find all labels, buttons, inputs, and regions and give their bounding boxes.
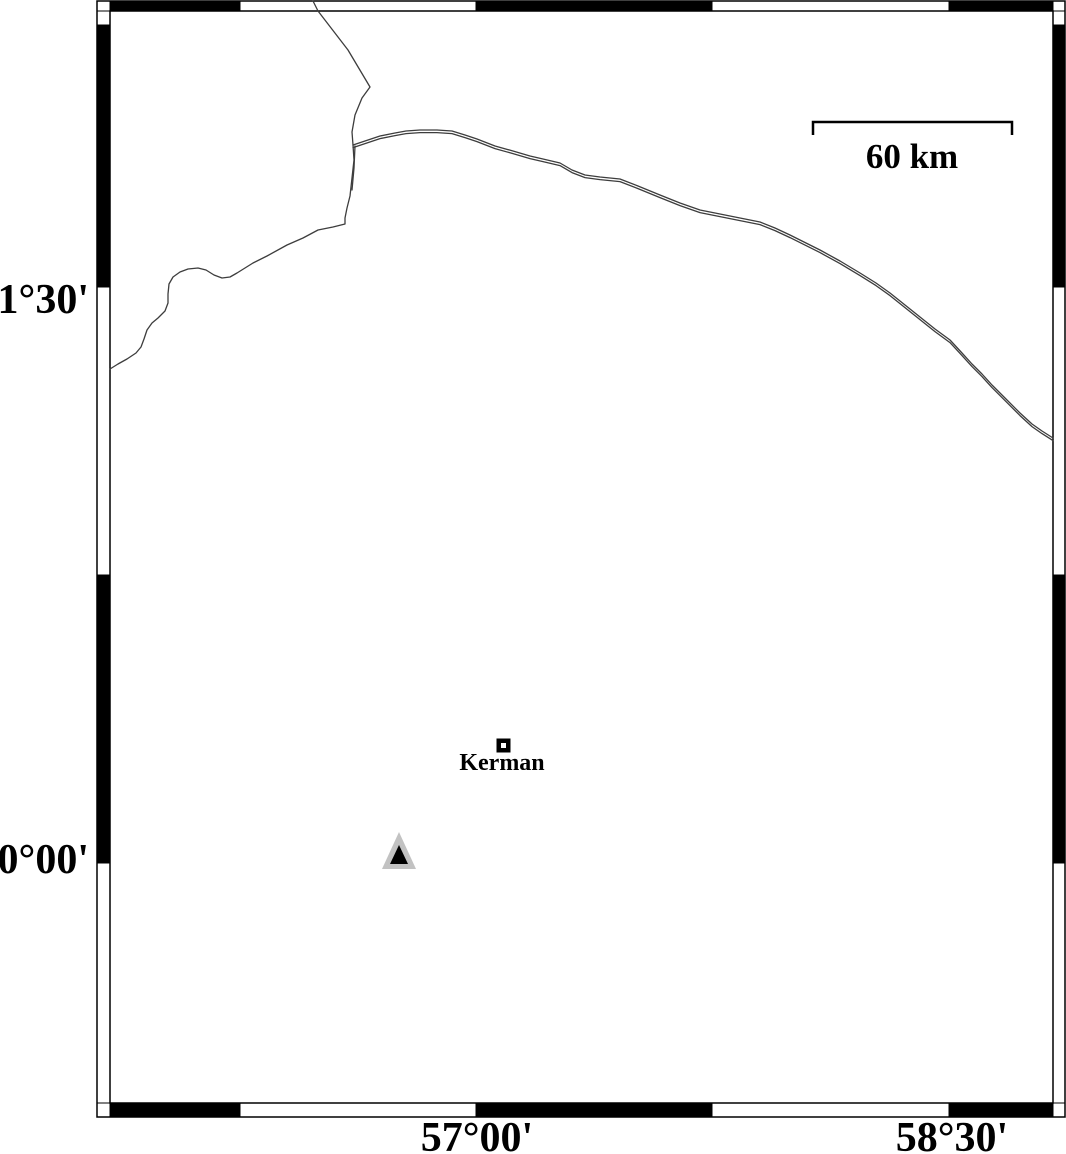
frame-top-band-cell: [476, 1, 712, 11]
lon-label-0: 57°00': [421, 1115, 533, 1154]
frame-right-band-cell: [1053, 575, 1065, 863]
frame-bottom-band-cell: [110, 1103, 240, 1117]
frame-left-band-cell: [97, 25, 110, 287]
frame-left-band-cell: [97, 11, 110, 25]
frame-left-band-cell: [97, 863, 110, 1103]
frame-right-band-cell: [1053, 1, 1065, 11]
double-border-line-b: [353, 133, 1053, 441]
frame-right-band-cell: [1053, 287, 1065, 575]
province-border-line: [110, 1, 370, 369]
city-label-kerman: Kerman: [459, 750, 544, 776]
lat-label-0: 31°30': [0, 277, 89, 323]
frame-top-band-cell: [712, 1, 949, 11]
scale-bar-label: 60 km: [866, 137, 958, 176]
city-marker-kerman: [499, 741, 509, 751]
frame-top-band-cell: [110, 1, 240, 11]
frame-left-band-cell: [97, 287, 110, 575]
frame-left-band-cell: [97, 575, 110, 863]
frame-right-band-cell: [1053, 1103, 1065, 1117]
frame-top-band-cell: [240, 1, 476, 11]
frame-right-band-cell: [1053, 11, 1065, 25]
map-figure: 31°30' 30°00' 57°00' 58°30' 60 km Kerman: [0, 0, 1066, 1154]
lon-label-1: 58°30': [896, 1115, 1008, 1154]
lat-label-1: 30°00': [0, 837, 89, 883]
map-canvas: 31°30' 30°00' 57°00' 58°30' 60 km Kerman: [0, 0, 1066, 1154]
scale-bar: [813, 122, 1012, 135]
frame-left-band-cell: [97, 1, 110, 11]
frame-right-band-cell: [1053, 25, 1065, 287]
frame-top-band-cell: [949, 1, 1053, 11]
double-border-line-a: [353, 130, 1053, 438]
frame-left-band-cell: [97, 1103, 110, 1117]
frame-right-band-cell: [1053, 863, 1065, 1103]
